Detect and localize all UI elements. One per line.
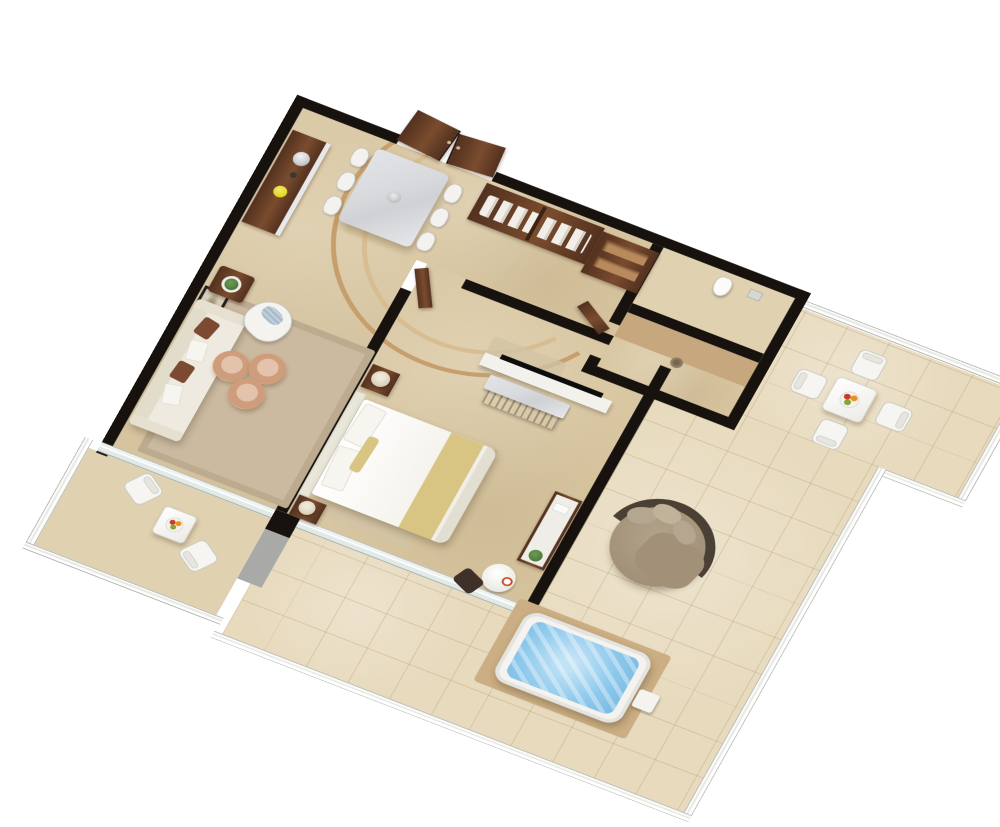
- floorplan-render: [0, 0, 1000, 827]
